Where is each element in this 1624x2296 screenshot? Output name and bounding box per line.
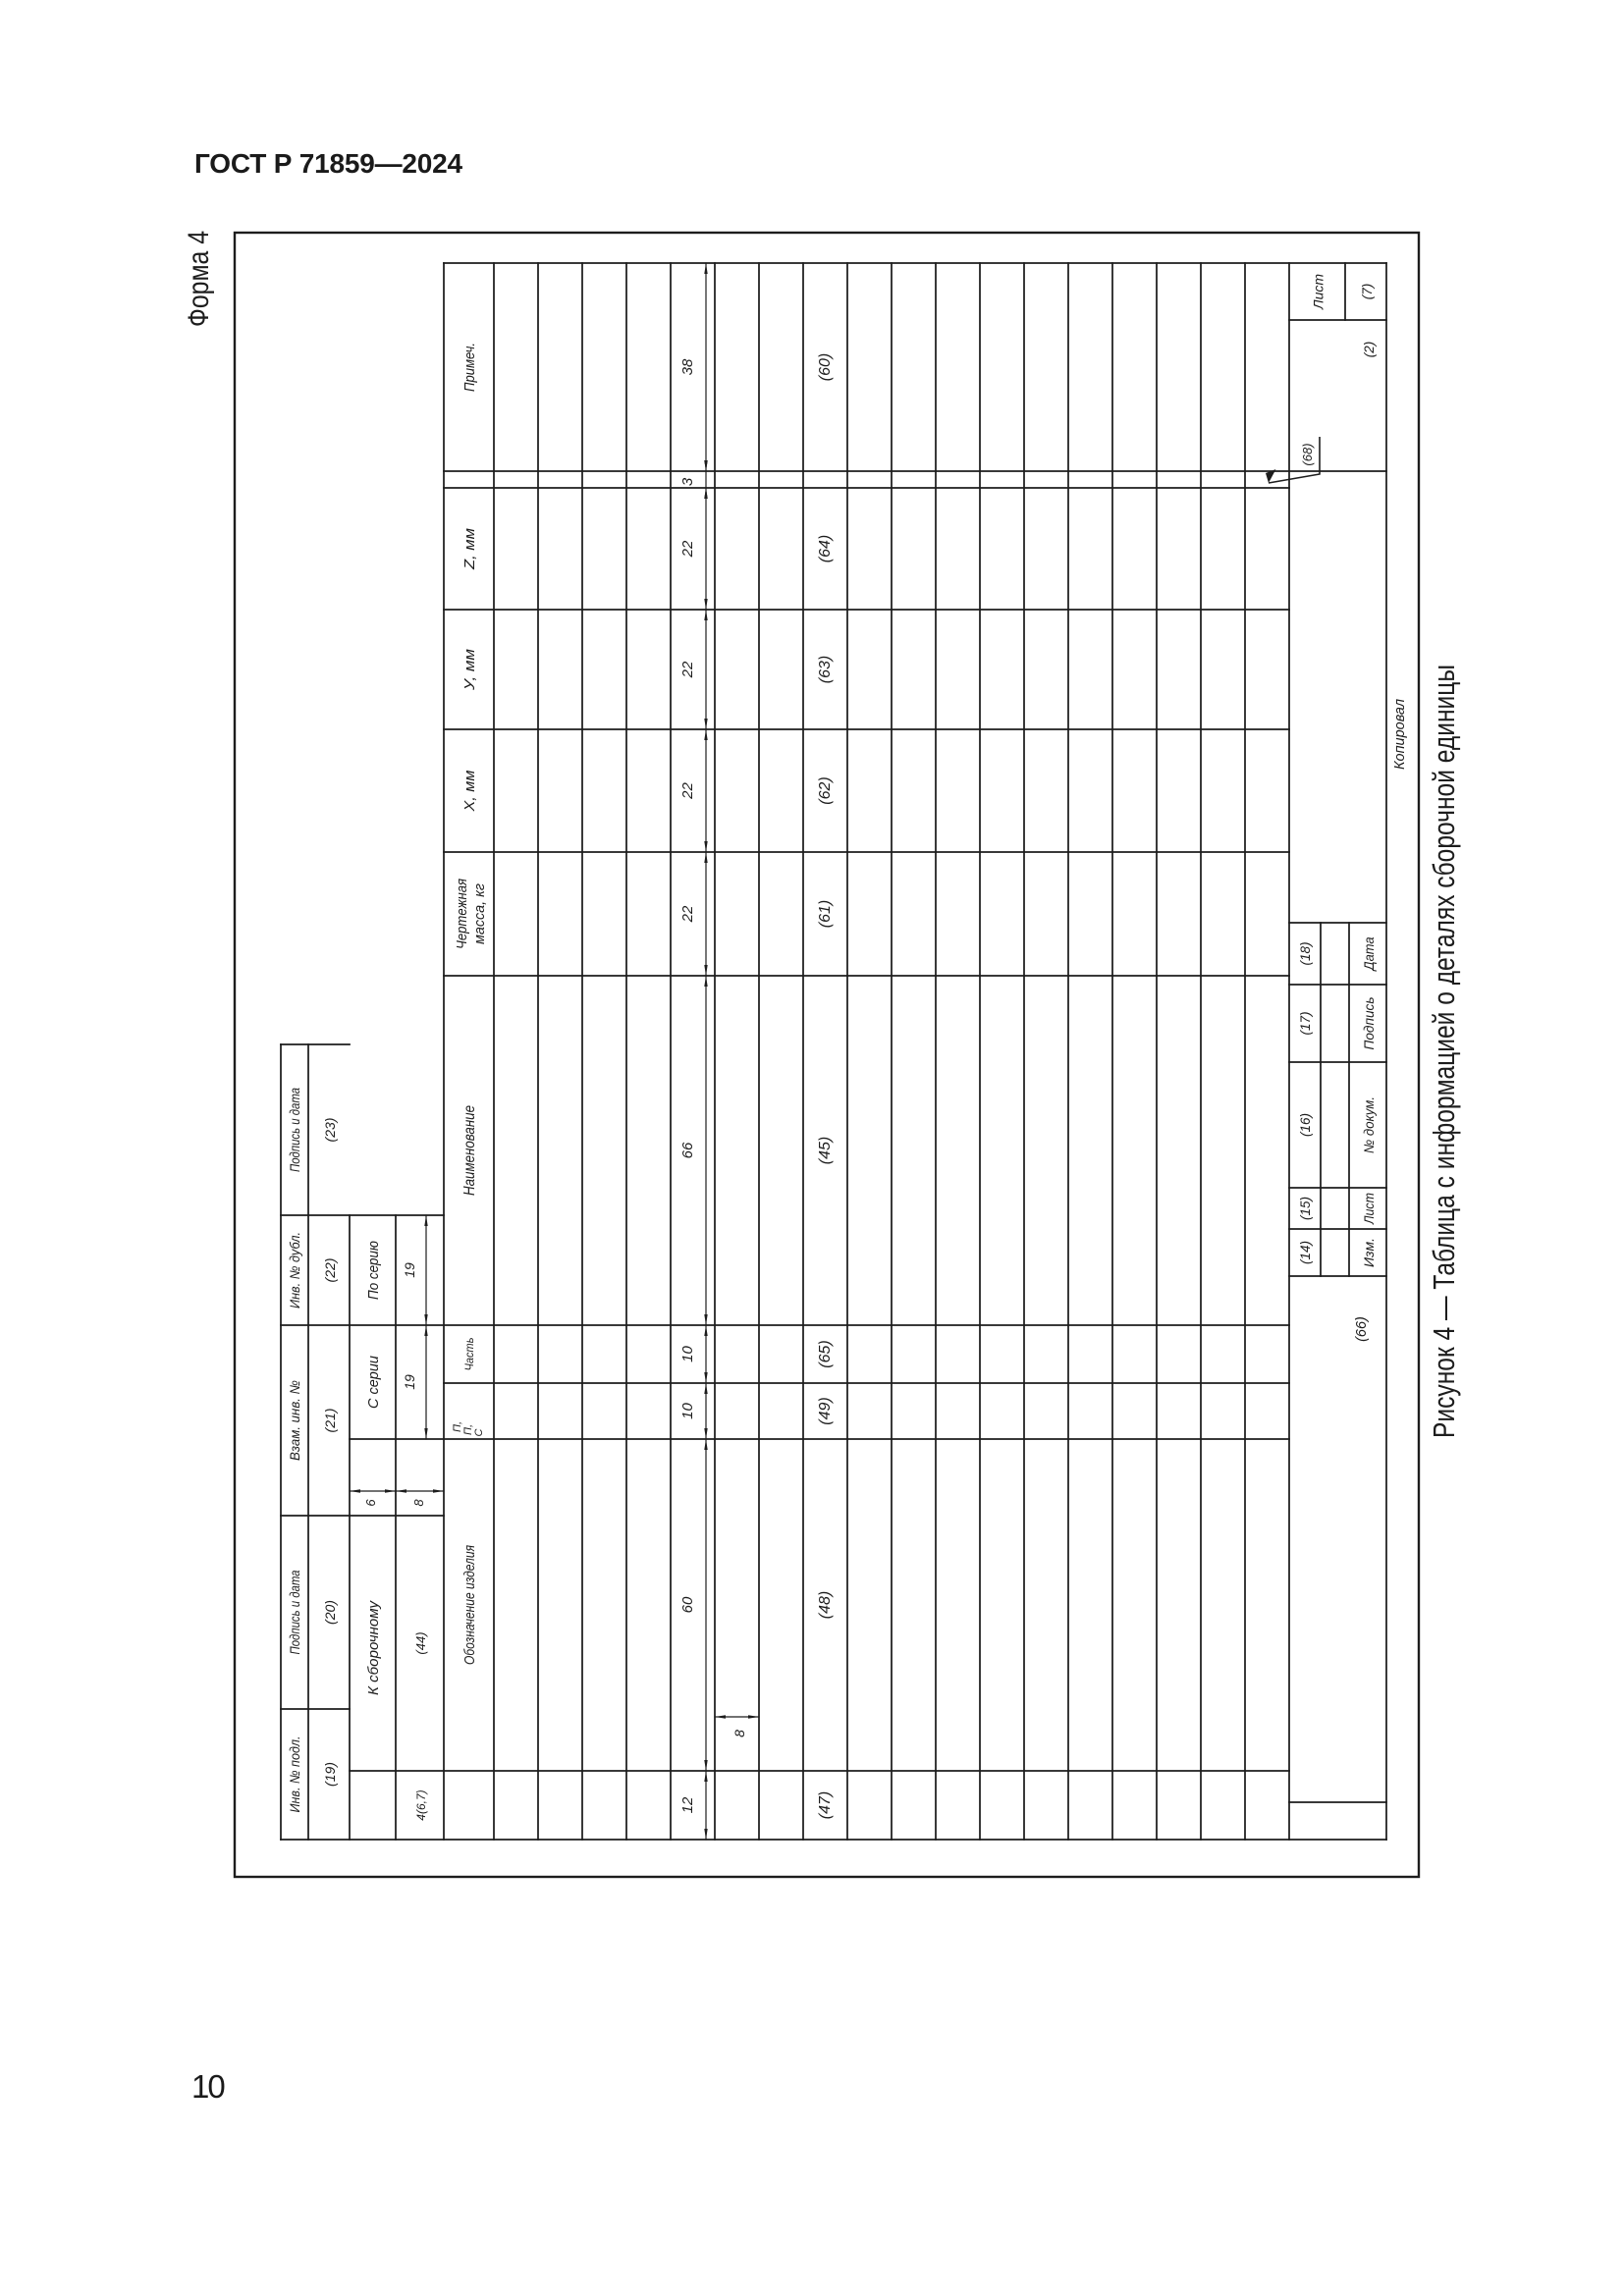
svg-text:X, мм: X, мм (461, 771, 478, 813)
svg-text:Подпись и дата: Подпись и дата (287, 1570, 302, 1654)
svg-text:Форма 4: Форма 4 (183, 231, 215, 327)
svg-text:(45): (45) (817, 1137, 834, 1164)
svg-text:Лист: Лист (1361, 1193, 1377, 1225)
svg-text:8: 8 (411, 1499, 426, 1507)
svg-text:(65): (65) (817, 1340, 834, 1367)
svg-text:(62): (62) (817, 776, 834, 804)
svg-text:(19): (19) (322, 1762, 338, 1787)
svg-text:Z, мм: Z, мм (461, 528, 478, 570)
svg-text:12: 12 (679, 1796, 696, 1813)
svg-text:10: 10 (679, 1403, 696, 1419)
svg-text:(60): (60) (817, 353, 834, 381)
svg-text:Чертежная: Чертежная (455, 879, 470, 949)
svg-text:Обозначение изделия: Обозначение изделия (461, 1545, 478, 1665)
svg-text:(66): (66) (1354, 1316, 1370, 1342)
svg-text:19: 19 (402, 1262, 417, 1278)
svg-text:(20): (20) (322, 1600, 338, 1625)
svg-text:(7): (7) (1360, 284, 1375, 300)
svg-text:(22): (22) (322, 1258, 338, 1283)
svg-text:(21): (21) (322, 1409, 338, 1433)
svg-text:22: 22 (679, 661, 696, 678)
svg-text:Взам. инв. №: Взам. инв. № (287, 1380, 302, 1461)
svg-text:Подпись и дата: Подпись и дата (287, 1088, 302, 1172)
svg-text:22: 22 (679, 540, 696, 558)
svg-text:У, мм: У, мм (461, 649, 478, 691)
svg-text:(15): (15) (1298, 1197, 1313, 1220)
svg-text:(14): (14) (1298, 1241, 1313, 1264)
svg-text:(64): (64) (817, 535, 834, 562)
svg-text:(18): (18) (1298, 941, 1313, 965)
svg-text:№ докум.: № докум. (1361, 1096, 1377, 1153)
svg-text:С серии: С серии (366, 1356, 382, 1409)
svg-text:(68): (68) (1300, 443, 1315, 465)
svg-text:Часть: Часть (462, 1338, 476, 1371)
svg-text:4(6,7): 4(6,7) (414, 1789, 428, 1820)
svg-text:(61): (61) (817, 900, 834, 928)
svg-text:10: 10 (679, 1346, 696, 1362)
svg-text:3: 3 (679, 477, 696, 486)
svg-text:(16): (16) (1298, 1113, 1313, 1137)
svg-text:(17): (17) (1298, 1011, 1313, 1035)
svg-text:22: 22 (679, 905, 696, 923)
svg-text:8: 8 (731, 1730, 747, 1737)
svg-text:Инв. № дубл.: Инв. № дубл. (287, 1232, 302, 1308)
svg-text:(2): (2) (1362, 342, 1377, 358)
svg-text:6: 6 (363, 1499, 378, 1507)
svg-text:(49): (49) (817, 1397, 834, 1424)
svg-text:Дата: Дата (1361, 936, 1377, 972)
svg-text:Копировал: Копировал (1391, 698, 1408, 770)
svg-text:Наименование: Наименование (461, 1105, 478, 1196)
svg-text:Примеч.: Примеч. (461, 343, 478, 392)
svg-text:По серию: По серию (366, 1241, 382, 1300)
svg-text:(63): (63) (817, 656, 834, 683)
svg-text:Изм.: Изм. (1361, 1238, 1377, 1267)
svg-text:22: 22 (679, 782, 696, 800)
svg-text:38: 38 (679, 358, 696, 375)
svg-text:масса, кг: масса, кг (472, 883, 488, 944)
svg-text:19: 19 (402, 1374, 417, 1390)
svg-text:Лист: Лист (1311, 274, 1326, 310)
svg-text:С: С (473, 1428, 485, 1436)
svg-text:(23): (23) (322, 1118, 338, 1143)
svg-text:(47): (47) (817, 1791, 834, 1819)
svg-text:Рисунок 4 — Таблица с информац: Рисунок 4 — Таблица с информацией о дета… (1427, 665, 1461, 1438)
svg-text:Инв. № подл.: Инв. № подл. (287, 1736, 302, 1813)
svg-text:66: 66 (679, 1142, 696, 1158)
svg-text:К сборочному: К сборочному (366, 1600, 382, 1695)
svg-text:60: 60 (679, 1596, 696, 1613)
svg-text:Подпись: Подпись (1361, 997, 1377, 1050)
svg-text:(44): (44) (413, 1631, 428, 1654)
svg-text:(48): (48) (817, 1591, 834, 1619)
